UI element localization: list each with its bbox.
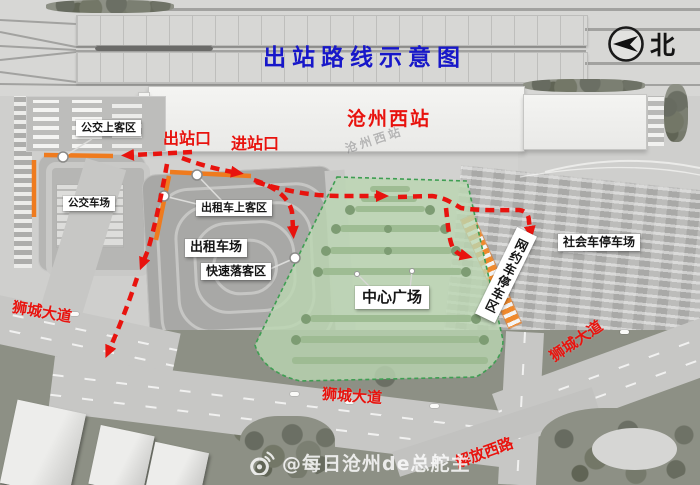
- car: [290, 392, 299, 396]
- watermark-text: @每日沧州de总舵主: [282, 449, 471, 476]
- tree-row-top: [46, 0, 174, 13]
- watermark: @每日沧州de总舵主: [249, 449, 471, 476]
- tree-row-station: [523, 79, 645, 92]
- bus-row: [33, 100, 59, 148]
- train: [95, 45, 213, 51]
- bus-boarding-label: 公交上客区: [76, 120, 141, 136]
- small-parking-east: [648, 96, 664, 146]
- station-building-east-wing: [523, 94, 647, 150]
- weibo-icon: [249, 450, 276, 475]
- entrance-gate-label: 进站口: [231, 130, 279, 154]
- taxi-yard-label: 出租车场: [185, 239, 247, 257]
- building-southwest: [88, 425, 154, 485]
- car: [620, 330, 629, 334]
- north-arrow-icon: [606, 24, 646, 64]
- quick-dropoff-label: 快速落客区: [201, 263, 271, 280]
- park-pond-path: [592, 428, 677, 470]
- exit-gate-label: 出站口: [163, 125, 211, 149]
- taxi-boarding-label: 出租车上客区: [196, 200, 272, 216]
- car: [430, 404, 439, 408]
- shicheng-avenue-label-center: 狮城大道: [321, 383, 382, 408]
- map-title: 出站路线示意图: [263, 38, 466, 72]
- compass: 北: [606, 24, 675, 64]
- station-name-label: 沧州西站: [347, 104, 431, 131]
- central-plaza-label: 中心广场: [355, 286, 429, 309]
- station-exit-route-map: 沧州西站: [0, 0, 700, 485]
- tree-cluster-east: [664, 84, 688, 142]
- public-parking-label: 社会车停车场: [558, 234, 640, 251]
- north-label: 北: [650, 26, 675, 62]
- bus-yard-label: 公交车场: [63, 196, 115, 211]
